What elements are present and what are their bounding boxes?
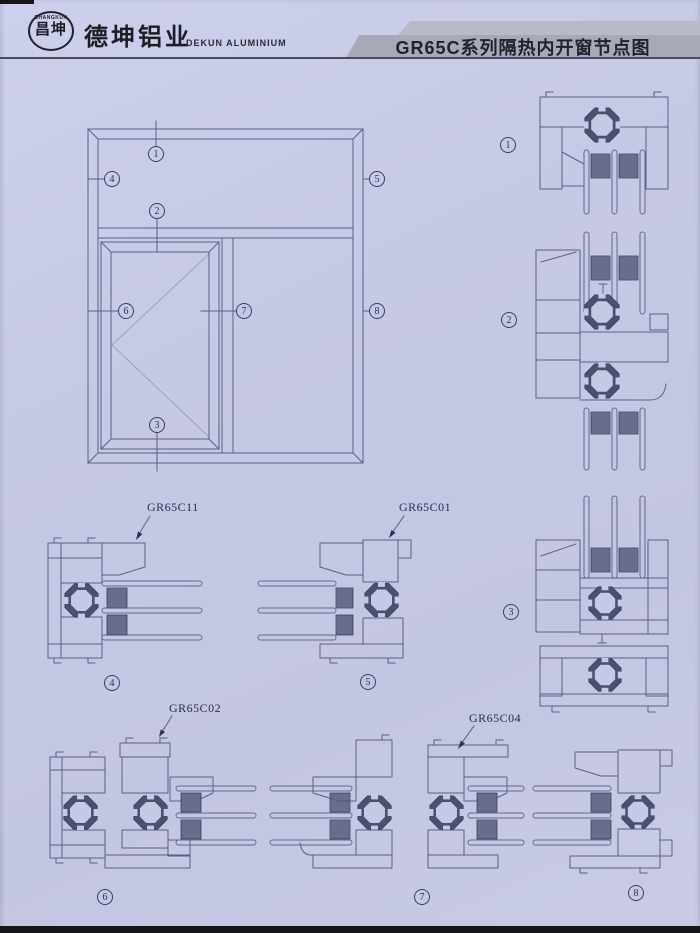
elevation-marker-8: 8 bbox=[369, 303, 385, 319]
opening-direction-lines bbox=[112, 254, 209, 437]
page-edge-bottom bbox=[0, 926, 700, 933]
elevation-marker-5: 5 bbox=[369, 171, 385, 187]
section-marker-8: 8 bbox=[628, 885, 644, 901]
profile-label-gr65c01: GR65C01 bbox=[399, 500, 451, 515]
section-detail-1 bbox=[540, 92, 668, 314]
section-marker-5: 5 bbox=[360, 674, 376, 690]
elevation-marker-4: 4 bbox=[104, 171, 120, 187]
section-detail-7 bbox=[270, 726, 524, 868]
section-detail-6 bbox=[50, 716, 256, 868]
profile-label-gr65c04: GR65C04 bbox=[469, 711, 521, 726]
elevation-marker-2: 2 bbox=[149, 203, 165, 219]
section-marker-3: 3 bbox=[503, 604, 519, 620]
elevation-marker-7: 7 bbox=[236, 303, 252, 319]
section-detail-4 bbox=[48, 516, 202, 663]
profile-label-gr65c02: GR65C02 bbox=[169, 701, 221, 716]
section-marker-6: 6 bbox=[97, 889, 113, 905]
section-detail-5 bbox=[258, 516, 411, 663]
elevation-marker-6: 6 bbox=[118, 303, 134, 319]
elevation-marker-1: 1 bbox=[148, 146, 164, 162]
section-marker-2: 2 bbox=[501, 312, 517, 328]
elevation-marker-3: 3 bbox=[149, 417, 165, 433]
marker-ticks bbox=[88, 121, 369, 471]
section-marker-7: 7 bbox=[414, 889, 430, 905]
window-elevation bbox=[88, 121, 369, 471]
section-detail-2 bbox=[536, 250, 668, 578]
section-detail-8 bbox=[533, 750, 672, 873]
profile-label-gr65c11: GR65C11 bbox=[147, 500, 199, 515]
catalog-page: CHANGKUN 昌坤 德坤铝业 DEKUN ALUMINIUM GR65C系列… bbox=[0, 0, 700, 933]
section-marker-4: 4 bbox=[104, 675, 120, 691]
node-diagrams bbox=[0, 0, 700, 933]
section-marker-1: 1 bbox=[500, 137, 516, 153]
